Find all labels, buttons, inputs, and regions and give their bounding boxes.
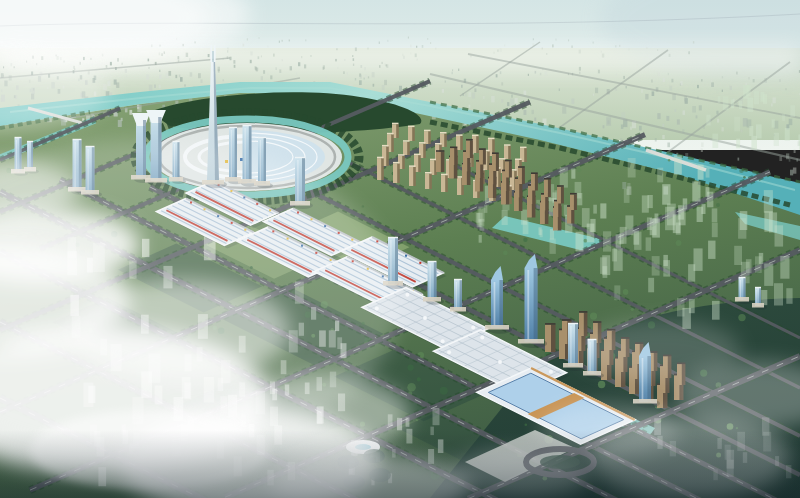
ghost-building xyxy=(786,288,792,304)
distant-building xyxy=(159,53,161,56)
tree-clump xyxy=(408,365,414,371)
distant-building xyxy=(452,69,453,71)
distant-building xyxy=(335,59,336,62)
distant-building xyxy=(552,44,554,47)
distant-building xyxy=(645,94,648,100)
residential-slab-side xyxy=(574,194,577,210)
residential-tower-side xyxy=(476,136,479,153)
distant-building xyxy=(149,85,153,91)
distant-building xyxy=(408,37,409,39)
residential-tower-side xyxy=(418,155,421,172)
residential-tower-roof xyxy=(488,138,495,140)
distant-building xyxy=(534,118,536,122)
distant-building xyxy=(452,72,453,75)
ghost-building xyxy=(662,184,670,205)
distant-building xyxy=(189,58,191,61)
distant-building xyxy=(738,158,740,161)
tree-clump xyxy=(583,239,587,243)
distant-building xyxy=(379,42,380,44)
tree-clump xyxy=(743,176,746,179)
distant-building xyxy=(671,79,673,83)
residential-tower-side xyxy=(460,136,463,150)
residential-slab-side xyxy=(551,325,556,352)
ghost-building xyxy=(478,219,481,227)
distant-building xyxy=(323,67,325,70)
distant-building xyxy=(616,74,617,76)
city-aerial-rendering xyxy=(0,0,800,498)
residential-tower-roof xyxy=(398,154,405,156)
residential-tower-roof xyxy=(382,145,389,147)
rendering-canvas xyxy=(0,0,800,498)
residential-tower xyxy=(424,131,428,144)
distant-building xyxy=(290,66,292,70)
residential-tower-roof xyxy=(403,140,410,142)
fog-cloud xyxy=(580,320,740,380)
residential-tower xyxy=(393,163,397,183)
ghost-building xyxy=(647,217,652,230)
distant-building xyxy=(183,44,184,46)
residential-tower-roof xyxy=(504,144,511,146)
residential-slab xyxy=(562,321,567,344)
distant-building xyxy=(540,73,541,76)
residential-tower-side xyxy=(444,134,447,148)
distant-building xyxy=(110,62,112,66)
distant-building xyxy=(364,67,366,70)
ghost-building xyxy=(736,139,740,149)
tower-side-shade xyxy=(434,262,437,300)
distant-building xyxy=(403,56,405,59)
ghost-building xyxy=(550,239,556,254)
tower-roof-cap xyxy=(15,137,22,138)
residential-tower xyxy=(403,142,407,155)
residential-tower-side xyxy=(407,142,410,155)
distant-building xyxy=(118,120,122,127)
hall-roof-cap xyxy=(405,293,409,297)
distant-building xyxy=(129,110,132,115)
distant-building xyxy=(279,41,280,43)
distant-building xyxy=(571,46,572,48)
hall-roof-cap xyxy=(498,360,502,364)
distant-building xyxy=(697,85,699,88)
residential-tower-roof xyxy=(440,132,447,134)
distant-building xyxy=(415,54,417,58)
residential-slab-side xyxy=(440,152,444,172)
distant-building xyxy=(186,53,188,57)
residential-tower-roof xyxy=(392,123,399,125)
distant-building xyxy=(500,48,502,52)
distant-building xyxy=(615,45,616,47)
ghost-building xyxy=(749,126,753,136)
distant-building xyxy=(722,127,724,131)
distant-building xyxy=(430,42,431,44)
distant-building xyxy=(470,55,471,57)
distant-building xyxy=(641,89,643,93)
distant-building xyxy=(282,40,283,42)
tree-clump xyxy=(417,377,421,381)
ghost-building xyxy=(657,168,663,183)
ghost-building xyxy=(688,264,695,282)
residential-slab-roof xyxy=(593,321,601,323)
distant-building xyxy=(282,59,283,61)
distant-building xyxy=(355,78,356,80)
residential-tower-side xyxy=(428,131,431,144)
residential-tower-roof xyxy=(456,134,463,136)
ghost-building xyxy=(712,134,718,148)
distant-building xyxy=(399,86,402,91)
tower-roof-cap xyxy=(568,323,578,324)
distant-building xyxy=(263,70,265,74)
residential-slab xyxy=(466,140,470,158)
residential-slab xyxy=(570,194,574,210)
distant-building xyxy=(159,75,161,79)
distant-building xyxy=(621,125,624,129)
residential-slab-roof xyxy=(557,185,564,187)
residential-tower-roof xyxy=(520,147,527,149)
distant-building xyxy=(184,84,185,86)
tower-highlight xyxy=(570,326,571,364)
distant-building xyxy=(533,38,534,40)
distant-building xyxy=(667,143,670,148)
tower-side-shade xyxy=(575,324,578,366)
ghost-building xyxy=(633,231,639,245)
distant-building xyxy=(785,88,786,90)
tower-podium xyxy=(735,297,749,302)
residential-slab-side xyxy=(483,150,486,165)
distant-building xyxy=(701,79,702,81)
hall-roof-cap xyxy=(471,326,475,330)
distant-building xyxy=(198,73,201,78)
distant-building xyxy=(684,96,687,101)
residential-slab-roof xyxy=(505,160,512,162)
distant-building xyxy=(528,74,529,76)
ghost-building xyxy=(523,220,529,234)
distant-building xyxy=(258,56,260,59)
distant-building xyxy=(427,38,428,40)
distant-building xyxy=(545,72,547,76)
residential-tower-side xyxy=(396,124,399,138)
residential-slab-side xyxy=(454,148,458,165)
ghost-building xyxy=(723,96,729,110)
distant-building xyxy=(234,65,236,68)
ghost-building xyxy=(763,94,767,104)
ghost-building xyxy=(625,215,633,235)
ghost-building xyxy=(706,187,710,197)
distant-building xyxy=(159,70,160,72)
hall-flag-accent xyxy=(419,262,421,264)
ghost-building xyxy=(620,227,627,244)
tower-highlight xyxy=(494,282,496,326)
ghost-building xyxy=(712,223,718,238)
ghost-building xyxy=(747,98,753,112)
tower-highlight xyxy=(429,264,430,298)
residential-slab xyxy=(450,148,454,165)
distant-building xyxy=(298,62,300,66)
distant-building xyxy=(711,82,714,87)
distant-building xyxy=(325,76,327,80)
distant-building xyxy=(201,79,203,83)
ghost-building xyxy=(708,241,715,259)
residential-slab-roof xyxy=(492,152,499,154)
residential-tower-roof xyxy=(425,172,432,174)
distant-building xyxy=(360,75,362,79)
residential-slab-side xyxy=(522,168,525,184)
ghost-building xyxy=(698,165,704,180)
distant-building xyxy=(683,110,686,115)
residential-tower-roof xyxy=(435,143,442,145)
distant-building xyxy=(646,47,647,49)
distant-building xyxy=(384,80,387,85)
ghost-building xyxy=(593,205,597,214)
distant-building xyxy=(343,71,345,74)
residential-tower-roof xyxy=(377,157,384,159)
ghost-building xyxy=(689,299,695,313)
residential-slab xyxy=(479,150,483,165)
distant-building xyxy=(382,62,383,64)
residential-tower xyxy=(457,178,461,195)
tower-roof-cap xyxy=(258,137,266,138)
tower-side-shade xyxy=(743,278,745,300)
tree-clump xyxy=(738,314,745,321)
distant-building xyxy=(208,54,210,57)
ghost-building xyxy=(706,115,710,126)
residential-tower xyxy=(441,175,445,192)
distant-building xyxy=(168,71,171,76)
distant-building xyxy=(386,64,387,66)
residential-slab-roof xyxy=(545,323,556,325)
ghost-building xyxy=(614,285,620,300)
ghost-building xyxy=(571,169,575,179)
distant-building xyxy=(511,95,513,98)
distant-building xyxy=(368,76,369,78)
ghost-building xyxy=(663,260,670,277)
distant-building xyxy=(461,85,463,88)
distant-building xyxy=(602,54,604,58)
distant-building xyxy=(310,55,311,57)
ghost-building xyxy=(624,189,630,203)
tree-clump xyxy=(362,205,364,207)
tree-clump xyxy=(590,313,597,320)
distant-building xyxy=(353,64,354,66)
distant-building xyxy=(243,44,245,47)
ghost-building xyxy=(718,96,721,103)
ghost-building xyxy=(652,219,660,238)
distant-building xyxy=(382,85,385,90)
distant-building xyxy=(593,94,594,96)
distant-building xyxy=(568,39,569,41)
tower-roof-cap xyxy=(295,157,305,158)
distant-building xyxy=(161,53,163,56)
residential-slab xyxy=(554,201,558,217)
distant-building xyxy=(372,72,375,77)
tower-side-shade xyxy=(460,280,462,310)
distant-building xyxy=(779,79,781,82)
tower-podium xyxy=(450,307,466,312)
distant-building xyxy=(680,81,682,85)
distant-building xyxy=(657,49,658,51)
residential-slab-roof xyxy=(450,147,457,149)
distant-building xyxy=(223,79,224,81)
distant-building xyxy=(630,127,632,130)
distant-building xyxy=(496,74,498,77)
residential-tower-side xyxy=(397,163,400,183)
ghost-building xyxy=(774,133,779,146)
distant-building xyxy=(279,69,281,73)
distant-building xyxy=(716,111,718,115)
residential-tower-side xyxy=(508,146,511,159)
spire-prong xyxy=(212,51,213,62)
distant-building xyxy=(355,48,357,52)
distant-building xyxy=(275,67,277,70)
distant-building xyxy=(628,48,629,51)
distant-building xyxy=(524,110,527,115)
ghost-building xyxy=(712,301,720,320)
residential-slab xyxy=(505,161,509,177)
distant-building xyxy=(603,125,605,128)
ghost-building xyxy=(433,408,440,425)
distant-building xyxy=(250,60,252,63)
residential-tower-roof xyxy=(424,130,431,132)
residential-slab-side xyxy=(548,179,551,197)
residential-tower-roof xyxy=(472,135,479,137)
distant-building xyxy=(497,50,498,52)
distant-building xyxy=(579,67,581,71)
distant-building xyxy=(273,54,275,57)
tree-clump xyxy=(523,238,527,242)
distant-building xyxy=(562,106,566,113)
ghost-building xyxy=(674,155,682,174)
distant-building xyxy=(717,119,719,123)
ghost-building xyxy=(692,181,700,201)
distant-building xyxy=(722,90,723,92)
distant-building xyxy=(741,130,743,133)
residential-tower-side xyxy=(413,167,416,186)
distant-building xyxy=(652,91,655,96)
distant-building xyxy=(524,91,527,96)
residential-tower xyxy=(409,167,413,186)
distant-building xyxy=(730,86,732,90)
distant-building xyxy=(504,45,505,47)
ghost-building xyxy=(751,136,757,150)
distant-building xyxy=(218,67,220,71)
residential-slab-side xyxy=(470,140,473,158)
tower-podium xyxy=(423,297,441,302)
distant-building xyxy=(385,63,386,65)
distant-building xyxy=(261,76,263,80)
distant-building xyxy=(289,40,290,42)
tree-clump xyxy=(440,387,448,395)
residential-slab-roof xyxy=(466,139,473,141)
residential-tower xyxy=(377,158,381,180)
tree-clump xyxy=(716,203,720,207)
residential-tower-roof xyxy=(419,142,426,144)
distant-building xyxy=(501,82,503,85)
residential-slab-side xyxy=(558,201,562,217)
distant-building xyxy=(146,74,149,79)
ghost-building xyxy=(600,203,606,218)
distant-building xyxy=(296,73,298,76)
distant-building xyxy=(542,48,543,50)
distant-building xyxy=(510,99,514,106)
ghost-building xyxy=(731,100,735,109)
residential-tower-side xyxy=(445,175,448,192)
distant-building xyxy=(445,81,446,83)
residential-slab-roof xyxy=(570,193,577,195)
spire-prong xyxy=(214,45,216,62)
distant-building xyxy=(663,78,665,82)
distant-building xyxy=(579,50,581,54)
distant-building xyxy=(305,39,306,41)
ghost-building xyxy=(734,246,742,265)
tree-clump xyxy=(739,169,744,174)
distant-building xyxy=(379,65,381,68)
residential-tower xyxy=(408,127,412,141)
distant-building xyxy=(501,99,503,103)
residential-tower-side xyxy=(412,127,415,141)
distant-building xyxy=(483,96,485,99)
distant-building xyxy=(247,38,248,40)
distant-building xyxy=(268,73,269,75)
residential-tower-roof xyxy=(414,154,421,156)
ghost-building xyxy=(780,256,789,279)
distant-building xyxy=(491,96,495,103)
ghost-building xyxy=(782,114,785,121)
residential-tower-roof xyxy=(387,133,394,135)
tree-clump xyxy=(676,240,682,246)
residential-slab-side xyxy=(535,174,538,191)
distant-building xyxy=(639,126,642,131)
distant-building xyxy=(126,76,127,78)
distant-building xyxy=(304,64,306,68)
hall-flag-accent xyxy=(405,255,407,257)
distant-building xyxy=(773,97,776,103)
residential-tower-roof xyxy=(409,165,416,167)
distant-building xyxy=(431,82,432,84)
distant-building xyxy=(469,105,471,108)
ghost-building xyxy=(775,225,784,246)
distant-building xyxy=(532,110,534,114)
residential-tower-side xyxy=(381,158,384,180)
distant-building xyxy=(669,54,671,57)
distant-building xyxy=(779,156,782,161)
distant-building xyxy=(655,138,657,141)
residential-tower-side xyxy=(391,134,394,152)
distant-building xyxy=(651,80,653,83)
residential-slab xyxy=(545,325,551,352)
distant-building xyxy=(623,76,625,79)
distant-building xyxy=(301,56,302,58)
distant-building xyxy=(601,51,602,53)
tower-roof-cap xyxy=(454,279,462,280)
distant-building xyxy=(336,48,337,50)
distant-building xyxy=(180,77,183,82)
distant-building xyxy=(417,59,418,61)
ghost-building xyxy=(550,229,554,239)
distant-building xyxy=(688,51,690,54)
distant-building xyxy=(701,148,703,152)
ghost-building xyxy=(667,204,676,226)
distant-building xyxy=(387,40,388,42)
residential-slab-roof xyxy=(479,148,486,150)
distant-building xyxy=(227,48,228,50)
distant-building xyxy=(359,80,362,85)
hall-roof-cap xyxy=(441,339,445,343)
distant-building xyxy=(696,115,698,118)
residential-slab-roof xyxy=(579,311,587,313)
spire-prong xyxy=(210,45,212,62)
ghost-building xyxy=(502,210,508,225)
residential-tower-roof xyxy=(430,159,437,161)
tower-roof-cap xyxy=(243,125,252,126)
